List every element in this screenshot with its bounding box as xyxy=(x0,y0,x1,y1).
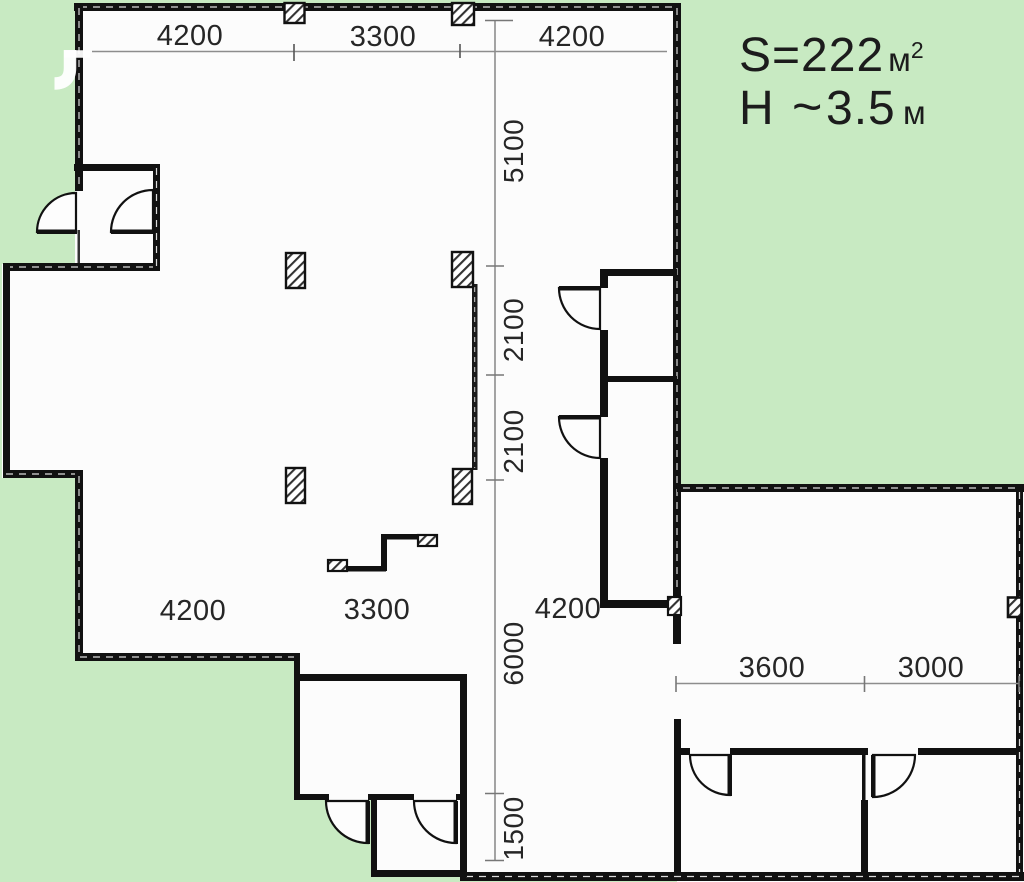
svg-text:2100: 2100 xyxy=(498,298,529,362)
svg-text:3300: 3300 xyxy=(350,21,417,53)
svg-text:2100: 2100 xyxy=(498,409,529,473)
svg-text:3000: 3000 xyxy=(898,652,965,684)
svg-text:5100: 5100 xyxy=(498,119,529,183)
svg-text:3300: 3300 xyxy=(344,594,411,626)
svg-text:4200: 4200 xyxy=(160,595,227,627)
svg-text:3600: 3600 xyxy=(739,652,806,684)
svg-text:1500: 1500 xyxy=(498,796,529,860)
svg-text:4200: 4200 xyxy=(157,20,224,52)
svg-text:4200: 4200 xyxy=(539,21,606,53)
svg-text:6000: 6000 xyxy=(498,621,529,685)
svg-text:4200: 4200 xyxy=(535,593,602,625)
